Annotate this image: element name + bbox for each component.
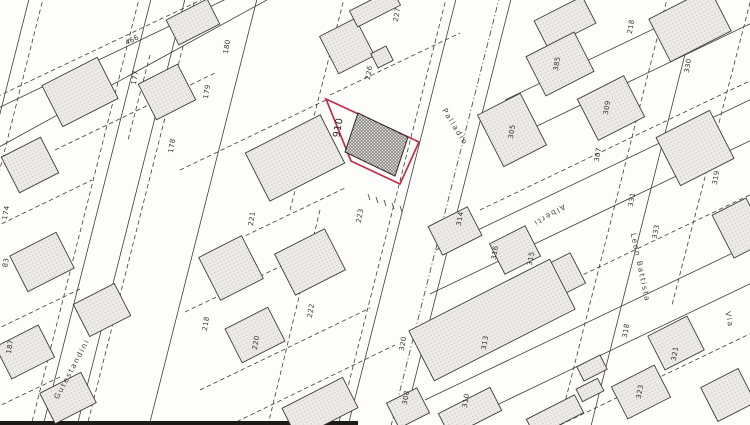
- building: [701, 369, 750, 422]
- building: [282, 377, 358, 425]
- parcel-number-218: 218: [626, 19, 636, 35]
- parcel-number-221: 221: [247, 211, 257, 227]
- labels-layer: 4661771801791781748318722722622122322221…: [1, 7, 736, 409]
- parcel-number-223: 223: [355, 208, 365, 224]
- parcel-number-179: 179: [202, 84, 212, 100]
- parcel-number-177: 177: [130, 70, 140, 86]
- building: [10, 232, 74, 291]
- parcel-number-320: 320: [398, 336, 408, 352]
- parcel-number-174: 174: [1, 205, 11, 221]
- building: [225, 307, 285, 363]
- building: [199, 236, 264, 301]
- building: [138, 64, 195, 120]
- parcel-number-83: 83: [1, 257, 11, 268]
- building: [245, 115, 344, 201]
- building: [576, 378, 604, 401]
- building: [42, 57, 118, 126]
- building: [371, 46, 393, 68]
- parcel-910-building-hatched: [345, 113, 408, 176]
- parcel-number-307: 307: [593, 147, 603, 163]
- building: [438, 387, 501, 425]
- parcel-and-road-lines: [0, 0, 750, 425]
- cadastral-map: 4661771801791781748318722722622122322221…: [0, 0, 750, 425]
- map-canvas: 4661771801791781748318722722622122322221…: [0, 0, 750, 425]
- building: [526, 395, 583, 425]
- building: [275, 229, 346, 295]
- parcel-number-315: 315: [526, 251, 536, 267]
- building: [1, 137, 58, 193]
- parcel-number-180: 180: [222, 39, 232, 55]
- building: [577, 355, 607, 381]
- parcel-number-227: 227: [392, 7, 402, 23]
- highlighted-parcel-910: [326, 99, 419, 184]
- parcel-number-218: 218: [201, 316, 211, 332]
- parcel-number-318: 318: [621, 323, 631, 339]
- building: [409, 259, 575, 381]
- parcel-number-333: 333: [651, 224, 661, 240]
- buildings-layer: [0, 0, 750, 425]
- street-name-via: Via: [723, 310, 735, 328]
- building: [166, 0, 220, 45]
- parcel-number-319: 319: [711, 170, 721, 186]
- parcel-number-226: 226: [364, 65, 374, 81]
- street-name-leon-battista: Leon Battista: [629, 232, 652, 303]
- parcel-number-330: 330: [683, 58, 693, 74]
- parcel-number-331: 331: [627, 192, 637, 208]
- building: [73, 284, 130, 337]
- building: [712, 198, 750, 258]
- parcel-number-222: 222: [306, 303, 316, 319]
- parcel-number-178: 178: [167, 138, 177, 154]
- street-name-palladio: Palladio: [440, 107, 470, 147]
- parcel-number-910-highlighted: 910: [331, 117, 345, 139]
- street-name-alberti: Alberti: [531, 202, 567, 228]
